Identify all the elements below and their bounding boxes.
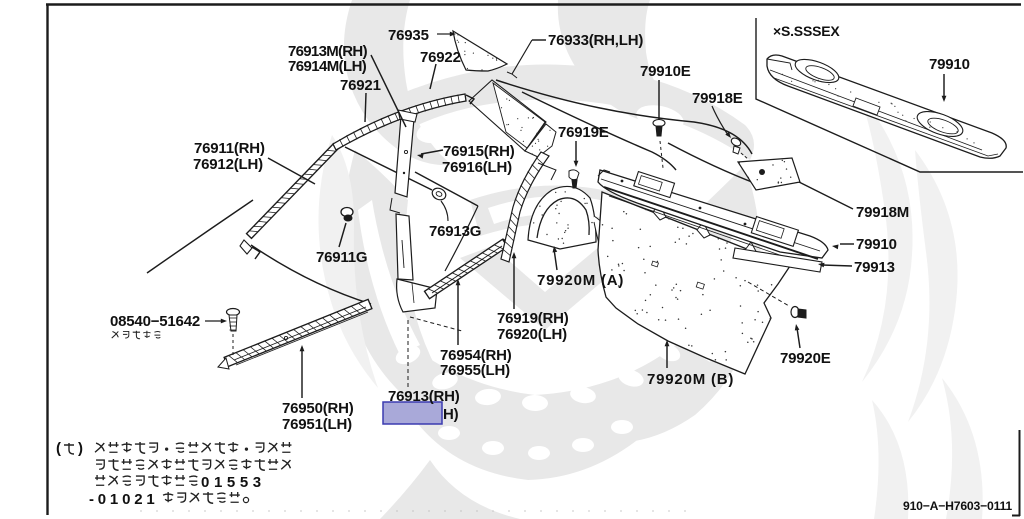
svg-text:01553: 01553 (201, 474, 266, 491)
svg-text:79910: 79910 (929, 56, 970, 73)
svg-text:76919(RH): 76919(RH) (497, 310, 569, 327)
svg-text:76955(LH): 76955(LH) (440, 362, 510, 379)
svg-text:76933(RH,LH): 76933(RH,LH) (548, 32, 643, 49)
svg-text:76920(LH): 76920(LH) (497, 326, 567, 343)
svg-text:-01021: -01021 (89, 491, 159, 508)
svg-text:76913G: 76913G (429, 223, 481, 240)
svg-text:08540−51642: 08540−51642 (110, 313, 200, 330)
svg-text:76951(LH): 76951(LH) (282, 416, 352, 433)
svg-text:79913: 79913 (854, 259, 895, 276)
svg-text:76916(LH): 76916(LH) (442, 159, 512, 176)
svg-text:76922: 76922 (420, 49, 461, 66)
svg-text:910−A−H7603−0111: 910−A−H7603−0111 (903, 499, 1012, 513)
svg-text:76919E: 76919E (558, 124, 609, 141)
svg-text:76911(RH): 76911(RH) (194, 140, 265, 157)
svg-text:79920M (B): 79920M (B) (647, 371, 734, 388)
svg-text:79920M (A): 79920M (A) (537, 272, 624, 289)
svg-text:76914M(LH): 76914M(LH) (288, 58, 367, 75)
svg-text:76913(RH): 76913(RH) (388, 388, 460, 405)
svg-text:76935: 76935 (388, 27, 429, 44)
svg-text:H): H) (443, 406, 459, 423)
svg-text:76912(LH): 76912(LH) (193, 156, 263, 173)
svg-text:79918M: 79918M (856, 204, 909, 221)
svg-text:76915(RH): 76915(RH) (443, 143, 515, 160)
svg-text:79910E: 79910E (640, 63, 691, 80)
svg-text:76911G: 76911G (316, 249, 367, 266)
svg-text:76921: 76921 (340, 77, 381, 94)
svg-text:79910: 79910 (856, 236, 897, 253)
svg-text:79920E: 79920E (780, 350, 831, 367)
svg-text:79918E: 79918E (692, 90, 743, 107)
svg-text:(: ( (56, 440, 61, 457)
svg-text:): ) (78, 440, 83, 457)
svg-text:×S.SSSEX: ×S.SSSEX (773, 23, 840, 39)
svg-text:76950(RH): 76950(RH) (282, 400, 354, 417)
